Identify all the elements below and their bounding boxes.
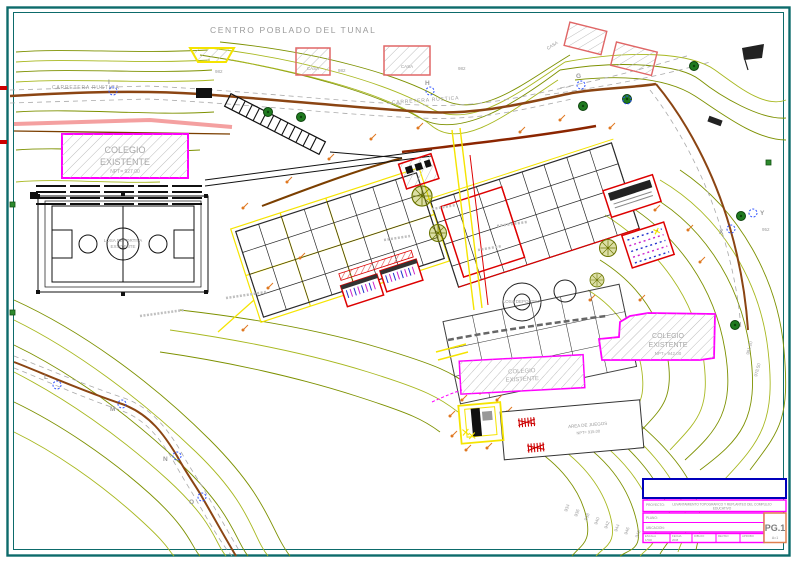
tb-sheet-number: PG.1 [765, 523, 786, 533]
tb-cell-value: 2008 [672, 538, 679, 542]
tb-plano-label: PLANO: [646, 516, 658, 520]
court-center-label: LOSA DEPORTIVA [503, 299, 542, 304]
point-label: M [110, 406, 115, 413]
point-label: X [719, 229, 724, 236]
colegio-left-line3: NPT= 927.00 [110, 169, 140, 175]
tb-sheet-sub: A=1 [772, 536, 778, 540]
elevation-label: 982 [338, 68, 346, 73]
colegio-right-line2: EXISTENTE [649, 342, 688, 349]
court-left-line2: EXISTENTE [110, 244, 135, 249]
colegio-right-line1: COLEGIO [652, 333, 684, 340]
tb-cell-label: APROBO [742, 534, 755, 538]
point-label: G [576, 73, 581, 80]
casa-label: CASA [401, 64, 413, 69]
point-label: O [189, 499, 194, 506]
tb-cell-label: DIBUJO [694, 534, 705, 538]
point-label: H [425, 80, 430, 87]
plan-canvas: COLEGIO EXISTENTE NPT= 927.00 LOSA DEPOR… [0, 0, 797, 563]
colegio-left: COLEGIO EXISTENTE NPT= 927.00 [62, 134, 188, 178]
tb-project-label: PROYECTO: [646, 503, 665, 507]
casa-label: CASA [307, 66, 319, 71]
casa-box [384, 46, 430, 75]
edge-tick [0, 86, 7, 90]
road-label-1: CARRETERA RUSTICA [52, 85, 120, 91]
elevation-label: 952 [762, 227, 770, 232]
point-label: L [44, 374, 48, 381]
house-shape [190, 48, 234, 62]
edge-tick [0, 140, 7, 144]
point-label: N [163, 456, 168, 463]
tb-cell-value: 1/500 [645, 538, 652, 542]
tb-cell-label: REVISO [718, 534, 729, 538]
elevation-label: 982 [215, 69, 223, 74]
court-left-line1: LOSA DEPORTIVA [104, 238, 143, 243]
tb-project-line2: EDUCATIVO [713, 507, 732, 511]
colegio-left-line2: EXISTENTE [100, 157, 150, 167]
elevation-label: 982 [458, 66, 466, 71]
tb-ubicacion-label: UBICACION: [646, 526, 665, 530]
colegio-left-line1: COLEGIO [104, 145, 145, 155]
colegio-right-line3: NPT= 942.00 [655, 351, 682, 356]
point-label: Y [760, 210, 765, 217]
title-block: PROYECTO: LEVANTAMIENTO TOPOGRAFICO Y RE… [643, 479, 786, 543]
cad-site-plan: COLEGIO EXISTENTE NPT= 927.00 LOSA DEPOR… [0, 0, 797, 563]
colegio-bottom: COLEGIO EXISTENTE [459, 355, 585, 394]
drawing-title: CENTRO POBLADO DEL TUNAL [210, 25, 376, 35]
